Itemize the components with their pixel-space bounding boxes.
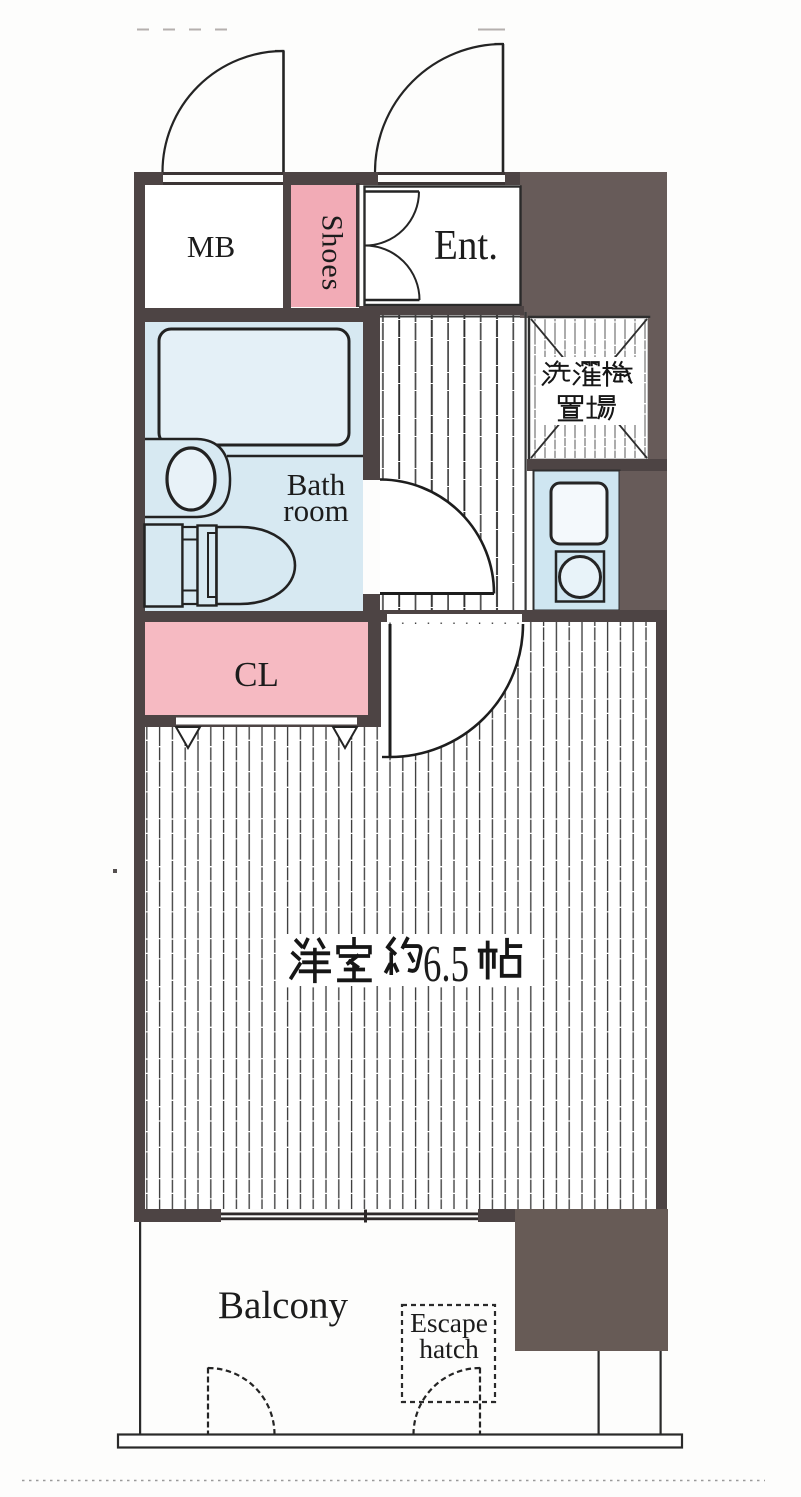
svg-text:Ent.: Ent. [434, 223, 498, 269]
svg-text:6.5: 6.5 [423, 936, 469, 993]
svg-text:hatch: hatch [419, 1333, 479, 1364]
svg-text:room: room [283, 493, 348, 528]
svg-text:CL: CL [234, 655, 279, 694]
svg-text:MB: MB [187, 229, 235, 264]
svg-text:Shoes: Shoes [316, 215, 349, 292]
svg-text:Balcony: Balcony [218, 1284, 348, 1327]
